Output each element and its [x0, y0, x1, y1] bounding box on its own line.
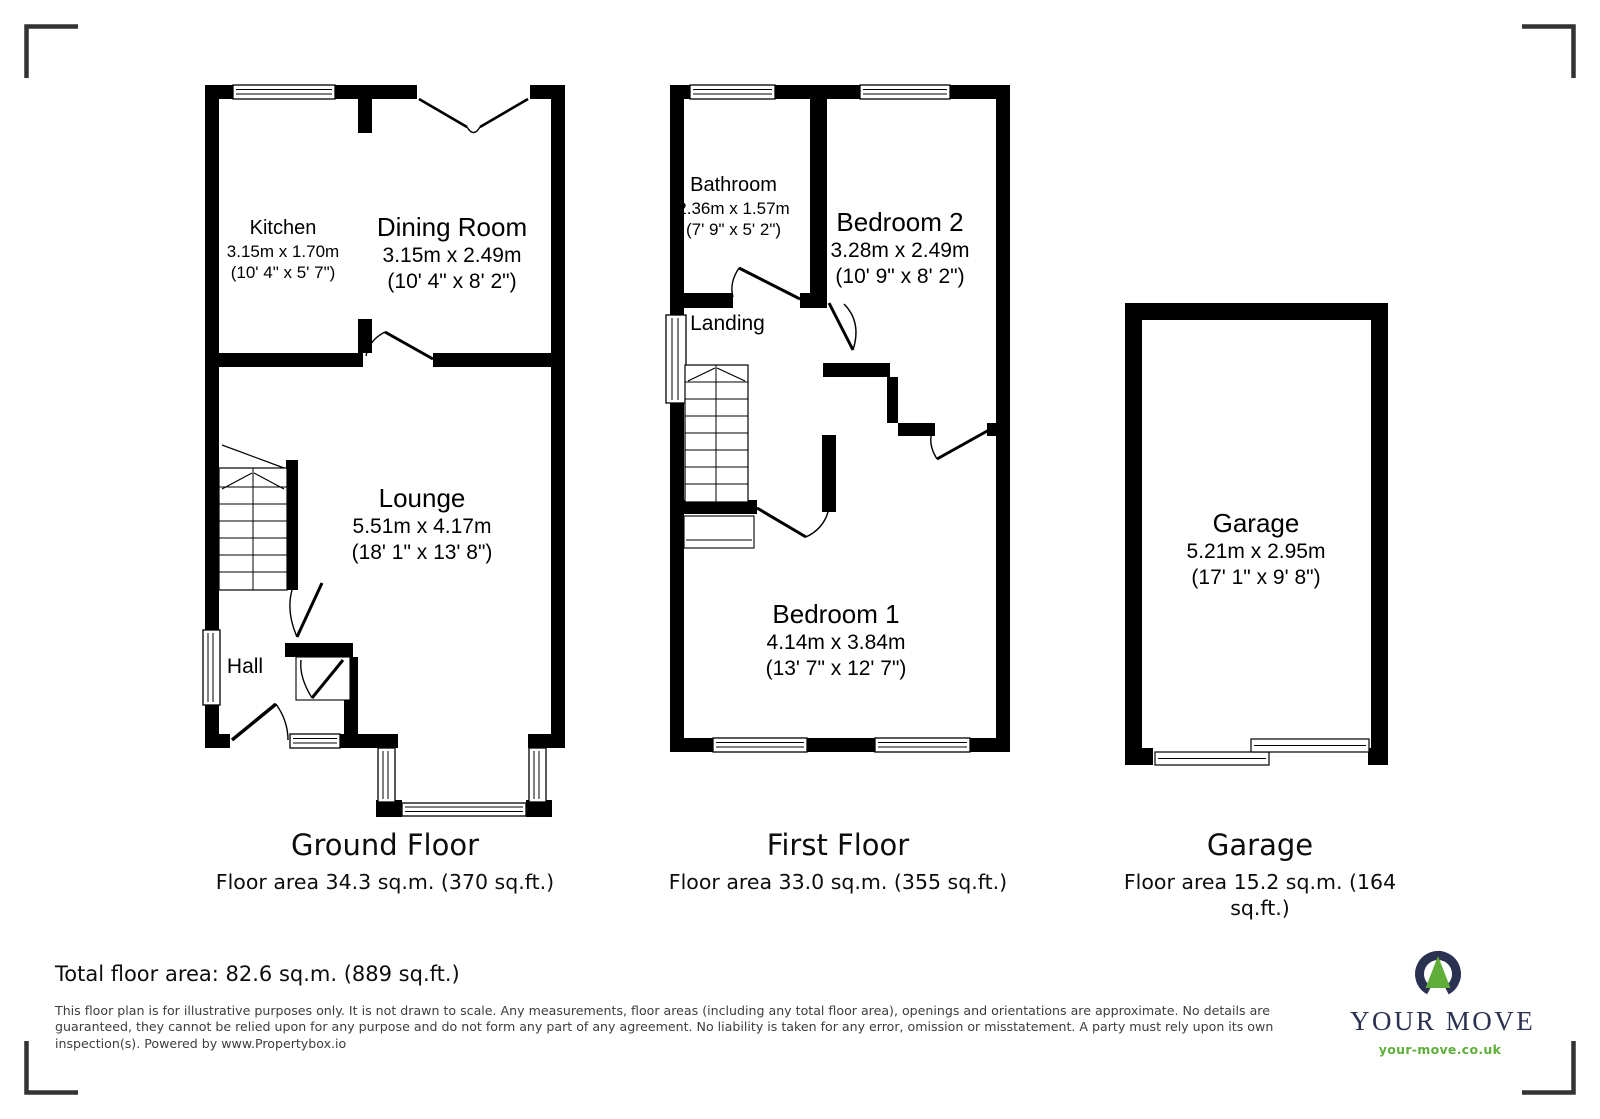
room-dims-ft: (10' 9" x 8' 2")	[810, 264, 990, 290]
total-floor-area: Total floor area: 82.6 sq.m. (889 sq.ft.…	[55, 962, 460, 986]
room-dims-m: 3.28m x 2.49m	[810, 238, 990, 264]
disclaimer-line-3: inspection(s). Powered by www.Propertybo…	[55, 1036, 1273, 1052]
dining-patio-doors	[419, 99, 528, 133]
garage-title-block: Garage Floor area 15.2 sq.m. (164 sq.ft.…	[1100, 828, 1420, 921]
logo-brand-name: YOUR MOVE	[1350, 1006, 1530, 1037]
landing-cupboard	[684, 516, 754, 548]
corner-mark-top-right	[1522, 27, 1574, 79]
logo-website: your-move.co.uk	[1350, 1042, 1530, 1057]
room-label-bathroom: Bathroom 2.36m x 1.57m (7' 9" x 5' 2")	[656, 173, 811, 240]
room-label-bedroom2: Bedroom 2 3.28m x 2.49m (10' 9" x 8' 2")	[810, 206, 990, 290]
disclaimer: This floor plan is for illustrative purp…	[55, 1003, 1273, 1052]
bedroom1-window-left	[713, 738, 807, 752]
room-dims-ft: (13' 7" x 12' 7")	[746, 656, 926, 682]
room-dims-ft: (18' 1" x 13' 8")	[332, 540, 512, 566]
front-door	[232, 704, 288, 740]
ground-floor-title-block: Ground Floor Floor area 34.3 sq.m. (370 …	[200, 828, 570, 896]
bathroom-window	[690, 85, 775, 99]
room-name: Kitchen	[203, 216, 363, 241]
room-label-hall: Hall	[205, 655, 285, 679]
bedroom1-door-right	[931, 430, 989, 459]
room-dims-ft: (7' 9" x 5' 2")	[656, 219, 811, 240]
room-dims-m: 5.21m x 2.95m	[1106, 539, 1406, 565]
kitchen-window	[233, 85, 335, 99]
floor-title: Ground Floor	[200, 828, 570, 862]
bedroom2-door	[829, 303, 856, 350]
bedroom1-window-right	[875, 738, 970, 752]
room-dims-m: 5.51m x 4.17m	[332, 514, 512, 540]
garage-door	[1155, 739, 1369, 765]
room-label-landing: Landing	[680, 312, 775, 336]
room-label-garage: Garage 5.21m x 2.95m (17' 1" x 9' 8")	[1106, 507, 1406, 591]
first-floor-staircase	[685, 365, 748, 502]
bathroom-door	[732, 268, 800, 299]
hall-front-window	[290, 734, 340, 748]
floor-area: Floor area 33.0 sq.m. (355 sq.ft.)	[653, 870, 1023, 896]
floor-area: Floor area 15.2 sq.m. (164 sq.ft.)	[1100, 870, 1420, 921]
room-name: Bedroom 2	[810, 206, 990, 238]
room-dims-m: 2.36m x 1.57m	[656, 198, 811, 219]
room-dims-m: 3.15m x 1.70m	[203, 241, 363, 262]
room-dims-ft: (17' 1" x 9' 8")	[1106, 565, 1406, 591]
lounge-door	[366, 332, 433, 359]
bedroom2-window	[860, 85, 950, 99]
room-label-bedroom1: Bedroom 1 4.14m x 3.84m (13' 7" x 12' 7"…	[746, 598, 926, 682]
ground-floor-staircase	[219, 445, 287, 590]
disclaimer-line-2: guaranteed, they cannot be relied upon f…	[55, 1019, 1273, 1035]
hall-cupboard	[296, 657, 350, 700]
ground-floor-walls	[205, 85, 565, 817]
bay-window	[378, 748, 546, 816]
floor-title: Garage	[1100, 828, 1420, 862]
room-name: Dining Room	[362, 211, 542, 243]
room-dims-ft: (10' 4" x 5' 7")	[203, 262, 363, 283]
bedroom1-door-left	[757, 508, 828, 537]
room-dims-m: 3.15m x 2.49m	[362, 243, 542, 269]
room-name: Lounge	[332, 482, 512, 514]
first-floor-title-block: First Floor Floor area 33.0 sq.m. (355 s…	[653, 828, 1023, 896]
room-name: Bedroom 1	[746, 598, 926, 630]
room-label-lounge: Lounge 5.51m x 4.17m (18' 1" x 13' 8")	[332, 482, 512, 566]
floor-area: Floor area 34.3 sq.m. (370 sq.ft.)	[200, 870, 570, 896]
room-name: Garage	[1106, 507, 1406, 539]
ground-floor-plan	[203, 85, 565, 817]
room-dims-ft: (10' 4" x 8' 2")	[362, 269, 542, 295]
room-label-dining: Dining Room 3.15m x 2.49m (10' 4" x 8' 2…	[362, 211, 542, 295]
stairs-lounge-door	[290, 583, 322, 637]
floor-title: First Floor	[653, 828, 1023, 862]
room-name: Bathroom	[656, 173, 811, 198]
disclaimer-line-1: This floor plan is for illustrative purp…	[55, 1003, 1273, 1019]
your-move-logo: YOUR MOVE your-move.co.uk	[1350, 940, 1530, 1057]
corner-mark-top-left	[27, 27, 79, 79]
room-dims-m: 4.14m x 3.84m	[746, 630, 926, 656]
room-label-kitchen: Kitchen 3.15m x 1.70m (10' 4" x 5' 7")	[203, 216, 363, 283]
